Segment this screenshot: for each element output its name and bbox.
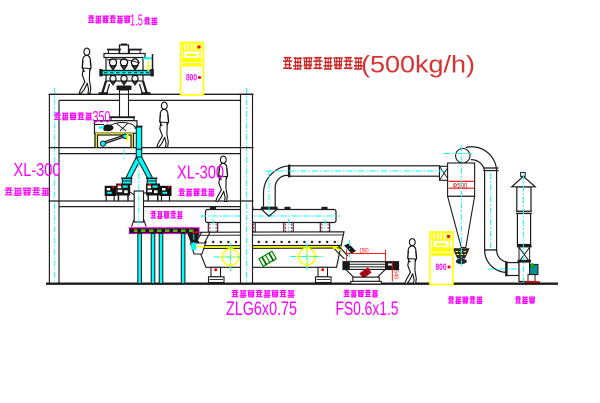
svg-text:XL-300: XL-300 xyxy=(14,160,61,180)
svg-text:1.5: 1.5 xyxy=(130,13,143,30)
svg-text:800: 800 xyxy=(186,73,197,84)
svg-text:350: 350 xyxy=(93,108,111,127)
svg-text:540: 540 xyxy=(393,270,399,279)
svg-text:1500: 1500 xyxy=(360,249,369,255)
svg-text:FS0.6x1.5: FS0.6x1.5 xyxy=(336,299,399,320)
svg-text:ZLG6x0.75: ZLG6x0.75 xyxy=(226,299,297,320)
svg-text:XL-300: XL-300 xyxy=(177,163,224,183)
svg-text:(500kg/h): (500kg/h) xyxy=(361,52,475,79)
svg-text:800: 800 xyxy=(436,262,447,273)
svg-text:Φ500: Φ500 xyxy=(453,183,468,189)
